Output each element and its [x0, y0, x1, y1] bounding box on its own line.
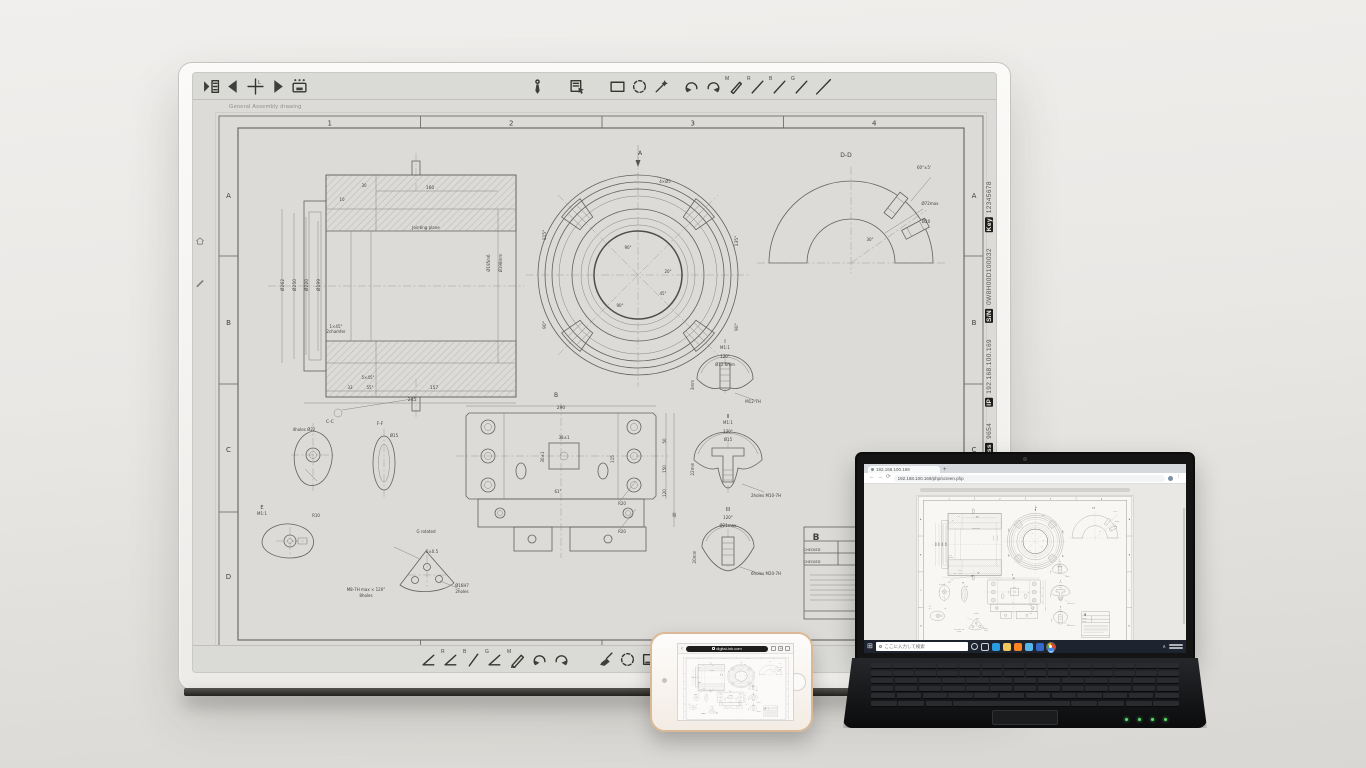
laptop-key[interactable]	[1157, 678, 1179, 684]
lock-icon	[712, 647, 715, 650]
smartphone: digital-ink.com	[650, 632, 813, 732]
pen-b-icon[interactable]: B	[771, 78, 788, 95]
indicator-lights	[1125, 718, 1167, 721]
laptop-key[interactable]	[1114, 671, 1135, 677]
tab-favicon	[871, 468, 874, 471]
start-button[interactable]	[867, 643, 873, 650]
laptop-key[interactable]	[1136, 671, 1157, 677]
angle-pen-r-icon[interactable]: R	[443, 651, 460, 668]
back-icon[interactable]	[681, 646, 683, 652]
bezel-label-ip: IP192.168.100.169	[986, 339, 993, 407]
taskbar-apps	[971, 643, 1055, 651]
pen-r-label: R	[441, 650, 445, 655]
laptop-keyboard	[871, 663, 1179, 707]
taskbar-icon-chrome[interactable]	[1047, 643, 1055, 651]
laptop-key[interactable]	[919, 678, 941, 684]
laptop-key[interactable]	[1085, 678, 1107, 684]
laptop-key[interactable]	[937, 663, 958, 669]
laptop-key[interactable]	[871, 663, 892, 669]
pen-g-label: G	[791, 77, 795, 82]
laptop-key[interactable]	[1026, 671, 1047, 677]
pen-b-label: B	[769, 77, 772, 82]
pencil-label: M	[725, 77, 729, 82]
laptop-key[interactable]	[1038, 678, 1060, 684]
angle-pen-b-icon[interactable]: B	[465, 651, 482, 668]
forward-icon[interactable]: →	[878, 475, 884, 481]
pencil-icon[interactable]: M	[509, 651, 526, 668]
taskbar-icon-cortana[interactable]	[971, 643, 978, 650]
laptop-key[interactable]	[1092, 671, 1113, 677]
laptop-key[interactable]	[1157, 686, 1179, 692]
laptop-key[interactable]	[1077, 693, 1101, 699]
pen-g-icon[interactable]: G	[793, 78, 810, 95]
laptop-key[interactable]	[982, 663, 1003, 669]
laptop-key[interactable]	[919, 686, 941, 692]
laptop-key[interactable]	[942, 678, 964, 684]
laptop-base	[843, 658, 1207, 728]
board-toolbar-top: L M R B G	[193, 73, 996, 100]
redo-icon[interactable]	[553, 651, 570, 668]
board-right-rail: Key12345678S/N0W8H00D100032IP192.168.100…	[982, 181, 996, 478]
laptop-key[interactable]	[1085, 686, 1107, 692]
taskbar-clock[interactable]	[1169, 644, 1183, 649]
crosshair-label: L	[258, 79, 261, 85]
laptop-key[interactable]	[1133, 678, 1155, 684]
tabs-icon[interactable]	[785, 646, 790, 651]
phone-url-bar[interactable]: digital-ink.com	[686, 646, 768, 652]
laptop-key[interactable]	[974, 693, 998, 699]
laptop-key[interactable]	[959, 671, 980, 677]
laptop-key[interactable]	[1070, 663, 1091, 669]
laptop-key[interactable]	[1158, 663, 1179, 669]
laptop-key[interactable]	[990, 678, 1012, 684]
laptop-key[interactable]	[871, 701, 897, 707]
laptop-key[interactable]	[948, 693, 972, 699]
laptop-key[interactable]	[966, 686, 988, 692]
laptop-key[interactable]	[1114, 663, 1135, 669]
power-light	[1125, 718, 1128, 721]
board-left-rail	[194, 233, 205, 293]
profile-avatar[interactable]	[1168, 476, 1173, 481]
laptop-key[interactable]	[1026, 693, 1050, 699]
tray-expand-icon[interactable]	[1162, 644, 1166, 650]
pen-rail-icon[interactable]	[195, 275, 205, 293]
phone-browser-bar: digital-ink.com	[678, 644, 793, 654]
laptop-key[interactable]	[1026, 663, 1047, 669]
pan-hand-icon[interactable]	[569, 78, 586, 95]
taskbar-icon-photos[interactable]	[1025, 643, 1033, 651]
redo-icon[interactable]	[705, 78, 722, 95]
reload-icon[interactable]: ⟳	[886, 475, 891, 481]
circle-tool-icon[interactable]	[631, 78, 648, 95]
laptop-drawing-view	[917, 496, 1133, 648]
laptop-key[interactable]	[1048, 663, 1069, 669]
wifi-light	[1164, 718, 1167, 721]
laptop: 192.168.100.169 ← → ⟳ 192.168.100.169/ph…	[843, 452, 1207, 733]
laptop-key[interactable]	[893, 671, 914, 677]
wand-tool-icon[interactable]	[653, 78, 670, 95]
laptop-key[interactable]	[1052, 693, 1076, 699]
page-toolbar-bar	[920, 488, 1130, 492]
photo-scene: L M R B G General Assembly drawing	[0, 0, 1366, 768]
laptop-key[interactable]	[1000, 693, 1024, 699]
taskbar-search[interactable]: ここに入力して検索	[876, 642, 968, 651]
laptop-drawing-sheet	[917, 496, 1133, 648]
laptop-key[interactable]	[871, 671, 892, 677]
laptop-key[interactable]	[1014, 678, 1036, 684]
laptop-key[interactable]	[1109, 686, 1131, 692]
clear-brush-icon[interactable]	[597, 651, 614, 668]
pencil-label: M	[507, 650, 511, 655]
taskbar-icon-task-view[interactable]	[981, 643, 989, 651]
pen-g-label: G	[485, 650, 489, 655]
laptop-spacebar[interactable]	[953, 701, 1069, 707]
eraser-pen-icon[interactable]: M	[727, 78, 744, 95]
laptop-key[interactable]	[895, 678, 917, 684]
menu-icon[interactable]: ⋮	[1176, 475, 1182, 481]
pen-bold-icon[interactable]	[815, 78, 832, 95]
page-prev-icon[interactable]	[225, 78, 242, 95]
charge-light	[1138, 718, 1141, 721]
laptop-key[interactable]	[1062, 678, 1084, 684]
webcam	[1023, 457, 1027, 461]
laptop-key[interactable]	[1092, 663, 1113, 669]
laptop-key[interactable]	[893, 663, 914, 669]
laptop-key[interactable]	[937, 671, 958, 677]
laptop-key[interactable]	[942, 686, 964, 692]
pen-r-label: R	[747, 77, 751, 82]
taskbar-icon-firefox[interactable]	[1014, 643, 1022, 651]
back-icon[interactable]: ←	[869, 475, 875, 481]
laptop-key[interactable]	[1014, 686, 1036, 692]
scrollbar[interactable]	[1183, 508, 1185, 624]
new-tab-icon[interactable]	[778, 646, 783, 651]
phone-camera	[662, 678, 667, 683]
laptop-key[interactable]	[1048, 671, 1069, 677]
laptop-key[interactable]	[990, 686, 1012, 692]
bezel-label-key: Key12345678	[986, 181, 993, 232]
taskbar-icon-file-explorer[interactable]	[1003, 643, 1011, 651]
taskbar-icon-mail[interactable]	[1036, 643, 1044, 651]
laptop-key[interactable]	[1038, 686, 1060, 692]
laptop-key[interactable]	[1004, 663, 1025, 669]
laptop-key[interactable]	[1070, 671, 1091, 677]
undo-icon[interactable]	[683, 78, 700, 95]
laptop-key[interactable]	[1109, 678, 1131, 684]
laptop-key[interactable]	[1071, 701, 1097, 707]
sidebar-toggle-icon[interactable]	[203, 78, 220, 95]
browser-tab[interactable]: 192.168.100.169	[868, 466, 940, 473]
laptop-key[interactable]	[897, 693, 921, 699]
pen-r-icon[interactable]: R	[749, 78, 766, 95]
laptop-screen: 192.168.100.169 ← → ⟳ 192.168.100.169/ph…	[855, 452, 1195, 660]
laptop-key[interactable]	[1158, 671, 1179, 677]
laptop-key[interactable]	[1126, 701, 1152, 707]
laptop-key[interactable]	[959, 663, 980, 669]
laptop-key[interactable]	[926, 701, 952, 707]
browser-page	[864, 484, 1186, 640]
laptop-key[interactable]	[1062, 686, 1084, 692]
search-placeholder: ここに入力して検索	[884, 644, 924, 650]
windows-taskbar: ここに入力して検索	[864, 640, 1186, 653]
search-icon	[879, 645, 883, 649]
laptop-key[interactable]	[1129, 693, 1153, 699]
angle-pen-g-icon[interactable]: G	[487, 651, 504, 668]
laptop-key[interactable]	[923, 693, 947, 699]
url-field[interactable]: 192.168.100.169/php/screen.php	[894, 475, 1165, 482]
laptop-key[interactable]	[898, 701, 924, 707]
drawing-filename: General Assembly drawing	[229, 104, 302, 110]
laptop-key[interactable]	[915, 663, 936, 669]
system-tray	[1162, 644, 1183, 650]
laptop-key[interactable]	[1133, 686, 1155, 692]
browser-tabstrip: 192.168.100.169	[864, 464, 1186, 473]
laptop-key[interactable]	[1153, 701, 1179, 707]
laptop-key[interactable]	[982, 671, 1003, 677]
laptop-key[interactable]	[871, 678, 893, 684]
laptop-key[interactable]	[895, 686, 917, 692]
phone-url-text: digital-ink.com	[716, 646, 742, 651]
tab-title: 192.168.100.169	[876, 467, 910, 472]
laptop-key[interactable]	[871, 686, 893, 692]
undo-icon[interactable]	[531, 651, 548, 668]
phone-drawing-view	[683, 657, 789, 721]
disk-light	[1151, 718, 1154, 721]
laptop-key[interactable]	[871, 693, 895, 699]
laptop-key[interactable]	[915, 671, 936, 677]
stylus-icon[interactable]	[529, 78, 546, 95]
laptop-key[interactable]	[1098, 701, 1124, 707]
lasso-circle-icon[interactable]	[619, 651, 636, 668]
pen-b-label: B	[463, 650, 466, 655]
share-icon[interactable]	[771, 646, 776, 651]
laptop-key[interactable]	[1155, 693, 1179, 699]
angle-pen-icon[interactable]	[421, 651, 438, 668]
new-tab-button[interactable]	[943, 467, 947, 473]
phone-screen: digital-ink.com	[677, 643, 794, 721]
crosshair-tool-icon[interactable]: L	[247, 78, 264, 95]
laptop-key[interactable]	[1004, 671, 1025, 677]
display-settings-icon[interactable]	[291, 78, 308, 95]
browser-addressbar: ← → ⟳ 192.168.100.169/php/screen.php ⋮	[864, 473, 1186, 484]
taskbar-icon-edge[interactable]	[992, 643, 1000, 651]
touchpad[interactable]	[992, 710, 1058, 725]
home-icon[interactable]	[195, 233, 205, 251]
laptop-display: 192.168.100.169 ← → ⟳ 192.168.100.169/ph…	[864, 464, 1186, 653]
rectangle-tool-icon[interactable]	[609, 78, 626, 95]
page-next-icon[interactable]	[269, 78, 286, 95]
bezel-label-sn: S/N0W8H00D100032	[986, 248, 993, 323]
laptop-key[interactable]	[1103, 693, 1127, 699]
laptop-key[interactable]	[966, 678, 988, 684]
laptop-key[interactable]	[1136, 663, 1157, 669]
